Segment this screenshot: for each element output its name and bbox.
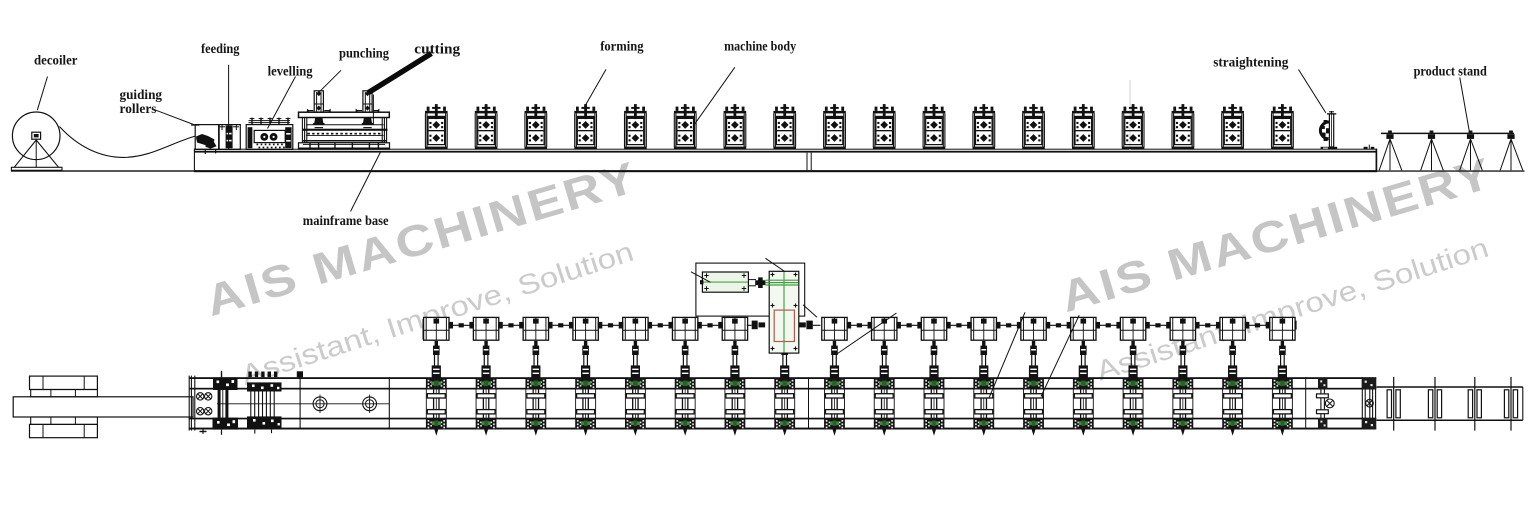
svg-text:punching: punching [339,47,389,62]
svg-text:machine body: machine body [724,40,796,55]
svg-text:straightening: straightening [1213,55,1288,70]
svg-text:rollers: rollers [120,102,158,117]
svg-text:cutting: cutting [414,42,460,58]
svg-text:product stand: product stand [1414,65,1487,80]
svg-text:AIS MACHINERY: AIS MACHINERY [1055,149,1499,322]
svg-text:mainframe base: mainframe base [303,214,389,229]
svg-text:feeding: feeding [201,42,240,57]
svg-text:decoiler: decoiler [34,54,78,69]
svg-text:levelling: levelling [268,65,313,80]
svg-text:AIS MACHINERY: AIS MACHINERY [200,153,644,326]
svg-text:forming: forming [600,40,643,55]
svg-text:guiding: guiding [120,88,163,103]
